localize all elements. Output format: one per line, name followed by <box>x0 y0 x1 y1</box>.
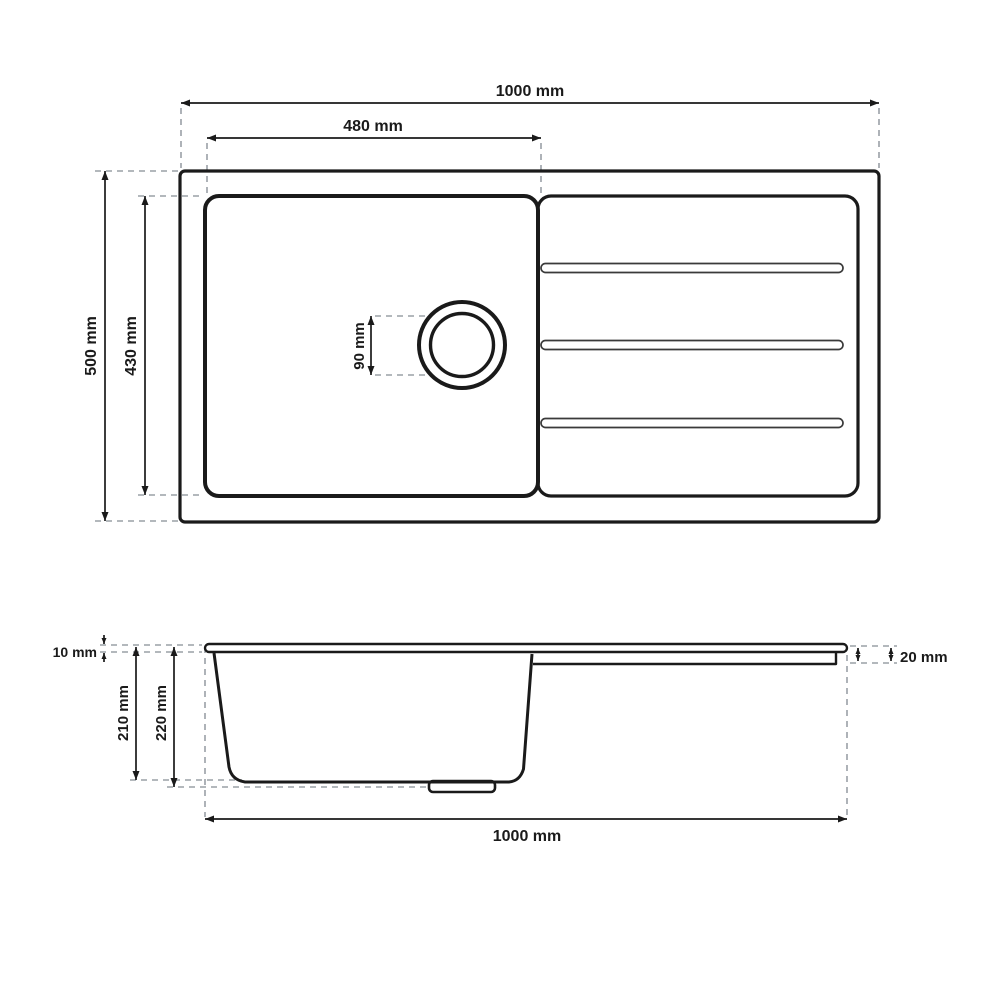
overall-length-label: 1000 mm <box>493 828 562 845</box>
drainboard-underside-profile <box>533 653 836 664</box>
bowl-overall-depth-label: 220 mm <box>153 685 170 741</box>
overall-width-label: 1000 mm <box>496 83 565 100</box>
bowl-width-label: 480 mm <box>343 118 403 135</box>
drainboard-thickness-label: 20 mm <box>900 649 948 666</box>
side-view <box>205 644 847 792</box>
rim-thickness-label: 10 mm <box>53 644 97 660</box>
drain-hole-inner <box>431 314 494 377</box>
drainboard-groove <box>541 264 843 273</box>
side-view-extension-lines <box>100 645 897 817</box>
drainboard-groove <box>541 341 843 350</box>
sink-technical-drawing: 1000 mm 480 mm 500 mm 430 mm 90 mm 10 mm… <box>0 0 1000 1000</box>
overall-depth-label: 500 mm <box>83 316 100 376</box>
drainboard-grooves <box>541 264 843 428</box>
rim-profile <box>205 644 847 652</box>
bowl-profile <box>214 653 532 782</box>
bowl-depth-label: 430 mm <box>123 316 140 376</box>
top-view <box>180 171 879 522</box>
bowl-inner-depth-label: 210 mm <box>115 685 132 741</box>
drainboard-groove <box>541 419 843 428</box>
drain-diameter-label: 90 mm <box>351 322 368 370</box>
sink-technical-drawing-page: 1000 mm 480 mm 500 mm 430 mm 90 mm 10 mm… <box>0 0 1000 1000</box>
